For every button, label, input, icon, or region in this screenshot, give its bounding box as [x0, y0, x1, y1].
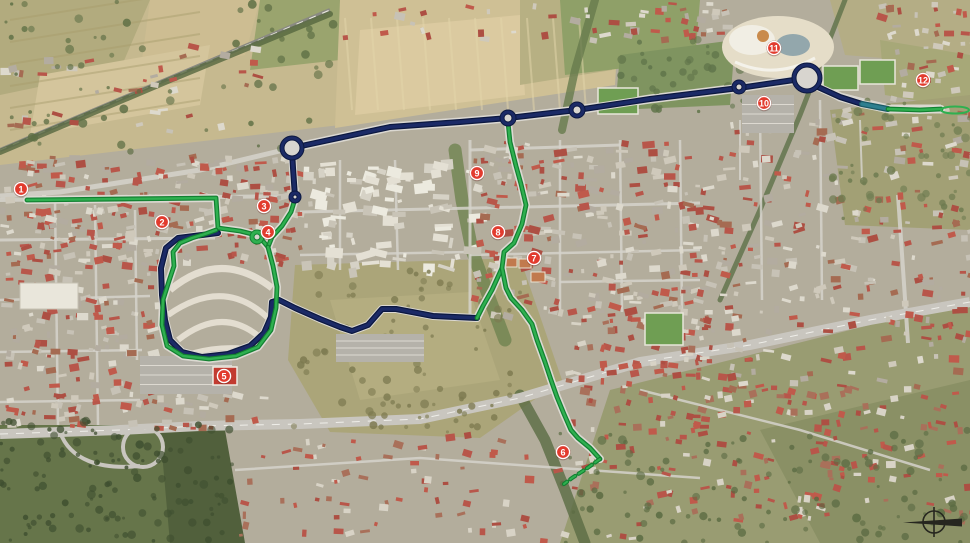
map-marker-8[interactable]: 8 — [491, 225, 506, 241]
aerial-map[interactable]: 123456789101112 — [0, 0, 970, 543]
marker-label: 10 — [759, 98, 769, 108]
map-marker-5[interactable]: 5 — [217, 369, 232, 385]
map-marker-11[interactable]: 11 — [767, 41, 782, 57]
marker-label: 12 — [918, 75, 928, 85]
marker-label: 6 — [560, 447, 565, 457]
map-marker-7[interactable]: 7 — [527, 251, 542, 267]
marker-label: 3 — [261, 201, 266, 211]
marker-label: 2 — [159, 217, 164, 227]
route-segment — [888, 109, 941, 110]
marker-label: 4 — [265, 227, 270, 237]
map-marker-3[interactable]: 3 — [257, 199, 272, 215]
map-marker-2[interactable]: 2 — [155, 215, 170, 231]
map-marker-12[interactable]: 12 — [916, 73, 931, 89]
map-marker-4[interactable]: 4 — [261, 225, 276, 241]
map-viewport: 123456789101112 — [0, 0, 970, 543]
map-marker-10[interactable]: 10 — [757, 96, 772, 112]
map-marker-6[interactable]: 6 — [556, 445, 571, 461]
marker-label: 11 — [769, 43, 779, 53]
marker-label: 8 — [495, 227, 500, 237]
satellite-imagery — [0, 0, 970, 543]
map-marker-1[interactable]: 1 — [14, 182, 29, 198]
marker-label: 5 — [221, 371, 226, 381]
map-marker-9[interactable]: 9 — [470, 166, 485, 182]
marker-label: 1 — [18, 184, 23, 194]
marker-label: 7 — [531, 253, 536, 263]
marker-label: 9 — [474, 168, 479, 178]
